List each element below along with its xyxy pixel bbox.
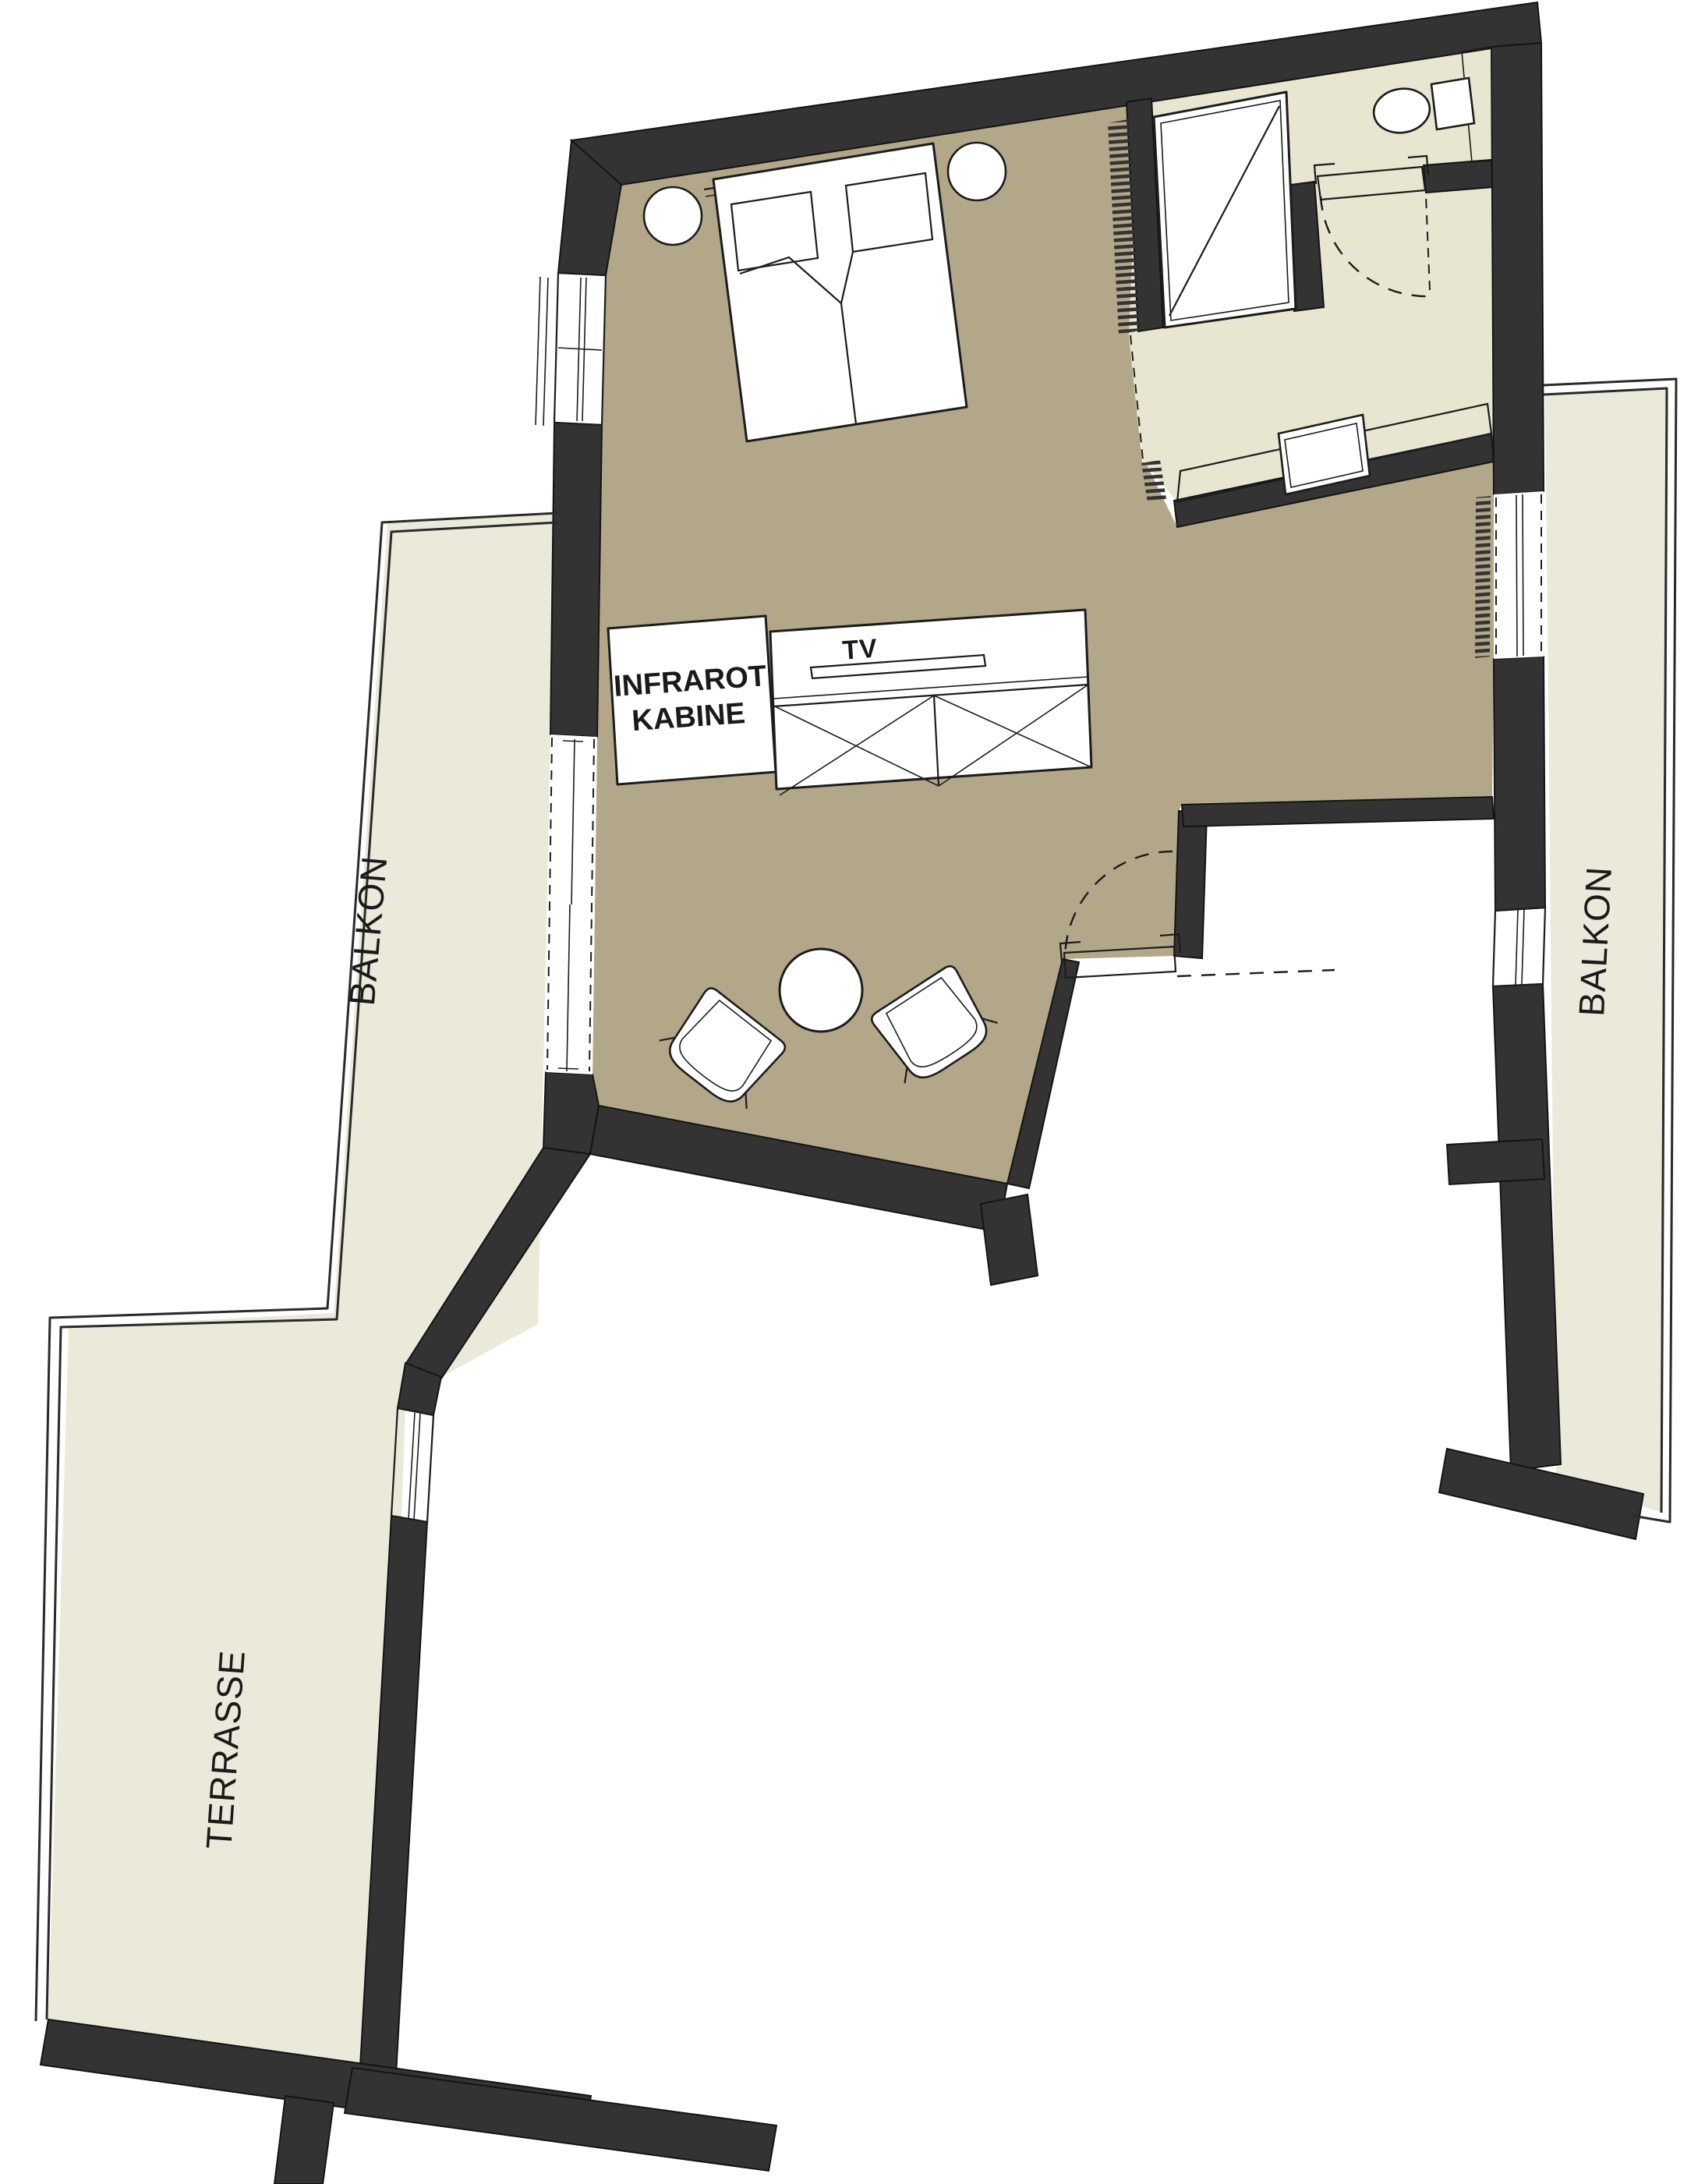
window-glass [414,1414,420,1520]
window-right-upper [1494,491,1544,659]
window-outer-line [536,277,540,425]
wall-hatch [1475,496,1491,658]
tv-sideboard [770,610,1091,795]
round-table [780,949,862,1032]
wall-east-lower [1493,984,1561,1471]
window-right-lower [1493,908,1545,986]
window-glass [1523,494,1523,656]
wall-west-lower [543,1072,599,1154]
bed-outline [713,143,967,441]
window-glass [409,1413,415,1519]
label-balcony-right: BALKON [1571,865,1619,1018]
wall-stub-southeast [981,1195,1038,1285]
wall-bottom-extension [345,2068,776,2171]
window-sill-line [558,348,602,350]
shower [1154,92,1296,327]
window-glass [1522,909,1524,984]
wall-west-mid [550,423,602,737]
window-outer-line [543,278,548,426]
double-bed [704,143,967,441]
label-tv: TV [841,633,879,665]
wall-bathroom-stub-east [1424,160,1494,193]
floor-plan-canvas: INFRAROT KABINE TV BALKON BALKON TERRASS… [0,0,1705,2184]
sideboard-outline [770,610,1091,789]
nightstand [948,143,1006,200]
window-glass [1516,495,1517,657]
wall-east-mid [1494,657,1545,911]
window-glass [1516,909,1518,985]
floor-plan-page: INFRAROT KABINE TV BALKON BALKON TERRASS… [0,0,1705,2184]
sliding-door-tick [563,741,583,742]
entry-threshold-dash [1177,970,1335,976]
terrace-floor [48,1313,538,2066]
toilet-cistern [1431,78,1474,129]
wall-stub-balcony-right [1447,1139,1544,1184]
wall-east-upper [1491,43,1544,494]
wall-bottom-stub [274,2096,334,2184]
sliding-door-tick [558,1068,578,1069]
nightstand [644,187,702,245]
